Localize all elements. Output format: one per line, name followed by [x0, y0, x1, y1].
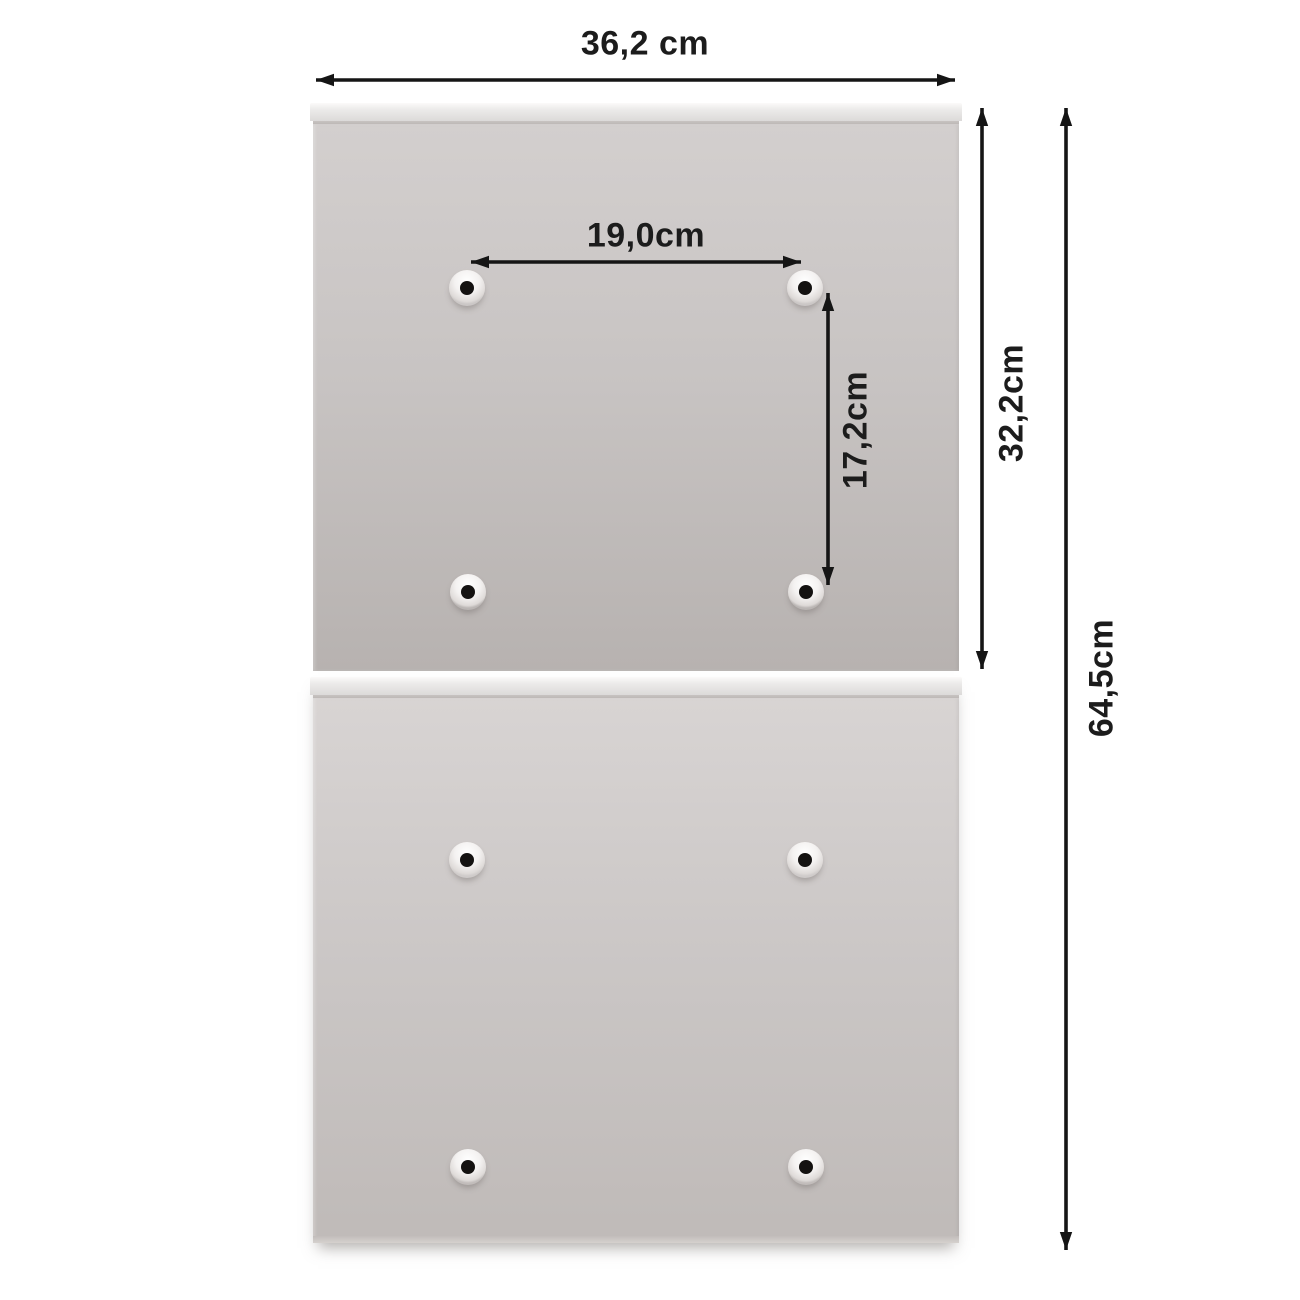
hole-center-dot — [460, 853, 474, 867]
dim-label-upper-panel-height: 32,2cm — [993, 344, 1032, 462]
mounting-hole — [788, 574, 824, 610]
hole-center-dot — [799, 585, 813, 599]
upper-panel-top-rail — [310, 103, 962, 121]
dim-label-hole-spacing-vertical: 17,2cm — [837, 371, 876, 489]
mounting-hole — [449, 270, 485, 306]
hole-center-dot — [799, 1160, 813, 1174]
mounting-hole — [450, 574, 486, 610]
dim-label-hole-spacing-horizontal: 19,0cm — [587, 217, 705, 256]
hole-center-dot — [461, 1160, 475, 1174]
lower-panel-top-rail — [310, 677, 962, 695]
hole-center-dot — [798, 853, 812, 867]
lower-panel-body — [313, 698, 959, 1243]
dim-label-width: 36,2 cm — [581, 25, 709, 64]
lower-panel — [313, 677, 959, 1243]
mounting-hole — [788, 1149, 824, 1185]
mounting-hole — [787, 270, 823, 306]
product-dimension-diagram: 36,2 cm 19,0cm 17,2cm 32,2cm 64,5cm — [0, 0, 1300, 1300]
hole-center-dot — [460, 281, 474, 295]
hole-center-dot — [798, 281, 812, 295]
mounting-hole — [787, 842, 823, 878]
dim-label-total-height: 64,5cm — [1083, 619, 1122, 737]
hole-center-dot — [461, 585, 475, 599]
mounting-hole — [449, 842, 485, 878]
mounting-hole — [450, 1149, 486, 1185]
